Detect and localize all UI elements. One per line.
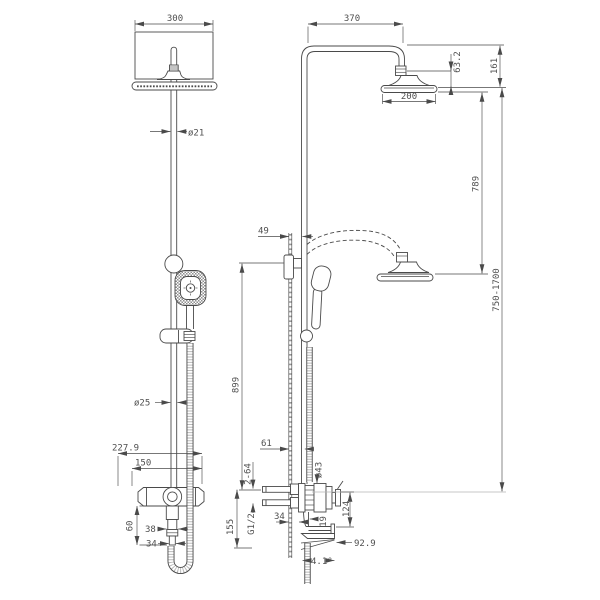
dim-eccentric: 2-64 (244, 463, 254, 485)
dim-arm-length: 370 (344, 14, 360, 24)
dim-head-dia: 200 (401, 92, 417, 102)
dim-inlet-spacing: 150 (135, 459, 151, 469)
dim-nut-width: 34 (146, 540, 157, 550)
mixer-front (138, 487, 204, 545)
side-view: 370 63.2 161 200 789 (226, 14, 506, 584)
dim-height-range: 750-1700 (492, 268, 502, 311)
thread-label: G1/2 (247, 513, 257, 535)
head-bell-side (389, 76, 430, 86)
head-cone (157, 71, 190, 80)
dim-head-travel: 789 (472, 176, 482, 192)
dim-stem-width: 38 (145, 525, 156, 535)
swivel-ball (165, 255, 183, 273)
dim-spout-reach: 92.9 (354, 539, 376, 549)
shower-technical-drawing: 300 ø21 ø25 227.9 150 60 38 34 (0, 0, 600, 600)
dim-column-offset: 61 (261, 439, 272, 449)
holder-ball-side (301, 330, 313, 342)
bracket-flange (284, 255, 294, 279)
dim-bar-length: 899 (232, 377, 242, 393)
dim-head-zone: 161 (490, 58, 500, 74)
hand-shower-front (160, 255, 206, 343)
arm-nut-lowered (397, 253, 408, 263)
drawing-canvas: 300 ø21 ø25 227.9 150 60 38 34 (0, 0, 600, 600)
mixer-body-side (314, 484, 326, 513)
inlet-stub-top (263, 487, 291, 493)
dim-outlet-drop: 155 (226, 519, 236, 535)
dim-head-drop: 63.2 (453, 51, 463, 73)
head-bell-lowered (388, 262, 429, 273)
diverter-stem (166, 506, 178, 520)
hand-shower-handle-side (311, 288, 322, 329)
mixer-side (263, 481, 344, 512)
hand-shower-head-side (310, 264, 333, 292)
side-view-dimensions: 370 63.2 161 200 789 (226, 14, 506, 567)
dim-spout-drop: 124 (342, 501, 352, 517)
dim-wall-gap: 34 (274, 512, 285, 522)
dim-wall-offset: 49 (258, 227, 269, 237)
dim-spout-angle: 4.1° (311, 557, 333, 567)
dim-column-dia: ø25 (134, 399, 150, 409)
wall-bracket (284, 255, 302, 279)
arm-nut (396, 66, 407, 76)
inlet-stub-bottom (263, 500, 291, 506)
front-view: 300 ø21 ø25 227.9 150 60 38 34 (112, 14, 217, 571)
wall-line (289, 233, 292, 558)
dim-spout-gap: 19 (319, 516, 329, 527)
dim-head-width: 300 (167, 14, 183, 24)
bracket-arm (294, 259, 302, 269)
spout-plate (302, 534, 335, 539)
handle-nut (184, 332, 195, 341)
dim-pipe-dia: ø21 (188, 129, 204, 139)
head-plate-lowered (377, 274, 433, 281)
dim-handle-drop: 60 (126, 521, 136, 532)
dim-mixer-width: 227.9 (112, 444, 139, 454)
dim-body-dia: ø43 (315, 462, 325, 478)
overhead-shower-front (132, 32, 217, 90)
knob-lever (338, 481, 344, 489)
hand-shower-side (301, 264, 333, 342)
pipe-nut (170, 65, 179, 71)
